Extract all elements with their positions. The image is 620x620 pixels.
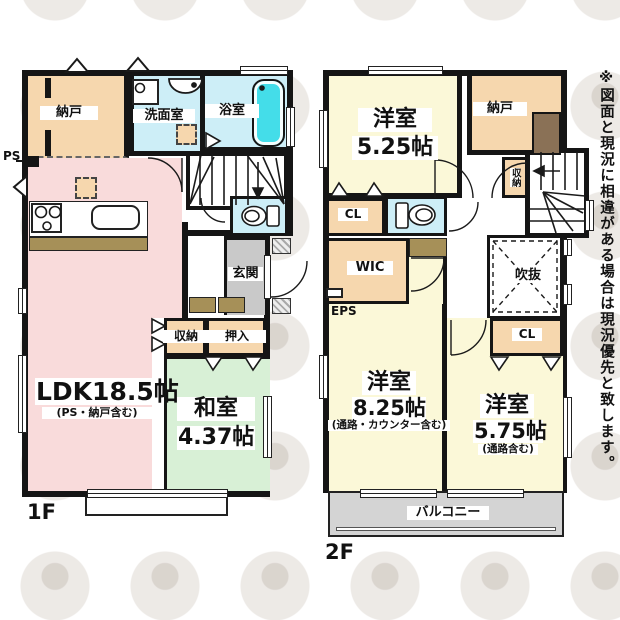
sliding-window — [87, 489, 228, 498]
label-tatami-size: 4.37帖 — [177, 426, 255, 450]
entrance-porch-pillar — [272, 238, 291, 254]
shoe-cabinet — [189, 297, 216, 313]
label-shuno-1f: 収納 — [163, 330, 209, 343]
terrace-step — [85, 497, 228, 516]
window — [319, 355, 328, 399]
label-ldk: LDK18.5帖 — [35, 378, 159, 405]
label-wic: WIC — [347, 261, 393, 275]
label-bedroom-575-size: 5.75帖 — [473, 420, 543, 443]
label-bedroom-575-note: (通路含む) — [478, 444, 538, 455]
label-bedroom-525: 洋室 — [358, 108, 432, 132]
label-balcony: バルコニー — [407, 506, 489, 520]
label-bedroom-825-size: 8.25帖 — [352, 397, 426, 420]
storage-2f-closet — [532, 112, 561, 155]
floorplan-canvas: 納戸 洗面室 浴室 PS LDK18.5帖 (PS・納戸含む) 収納 押入 和室… — [0, 0, 620, 620]
room-tatami — [164, 356, 270, 491]
room-toilet-2f — [385, 196, 447, 236]
hall-wall — [182, 222, 188, 318]
window — [319, 110, 328, 168]
label-entrance: 玄関 — [228, 267, 263, 281]
label-bathroom: 浴室 — [205, 104, 259, 118]
label-cl-b: CL — [512, 328, 542, 341]
window — [563, 284, 572, 305]
label-cl-a: CL — [338, 208, 368, 221]
window — [18, 288, 27, 314]
sink-icon — [91, 205, 140, 230]
window — [368, 66, 443, 75]
label-oshiire: 押入 — [208, 330, 266, 343]
pipe-space-box — [26, 156, 39, 167]
label-washroom: 洗面室 — [133, 109, 195, 123]
window — [286, 107, 295, 147]
washing-machine-icon — [132, 79, 159, 105]
label-void: 吹抜 — [508, 269, 548, 283]
sliding-window — [447, 489, 524, 498]
label-eps: EPS — [330, 305, 358, 318]
label-shuno-2f: 収納 — [510, 168, 520, 187]
label-floor1: 1F — [26, 501, 57, 524]
label-tatami: 和室 — [177, 397, 255, 421]
disclaimer-vertical-text: ※図面と現況に相違がある場合は現況優先と致します。 — [596, 70, 617, 590]
label-bedroom-575: 洋室 — [480, 394, 534, 418]
sliding-window — [360, 489, 437, 498]
stove-icon — [31, 203, 62, 233]
label-floor2: 2F — [324, 541, 355, 564]
window — [18, 355, 27, 433]
balcony-rail-line — [336, 527, 556, 531]
ldk-dashed-column — [75, 177, 97, 199]
label-storage-2f: 納戸 — [473, 102, 527, 116]
window — [263, 396, 272, 458]
entrance-door-leaf — [264, 255, 271, 299]
eps-box — [326, 288, 343, 298]
window — [585, 200, 594, 231]
storage-partition-wall — [45, 130, 51, 156]
window — [563, 397, 572, 458]
kitchen-counter-front — [29, 237, 148, 251]
label-bedroom-825: 洋室 — [362, 371, 416, 395]
label-bedroom-525-size: 5.25帖 — [352, 136, 438, 160]
room-toilet-1f — [230, 196, 288, 236]
label-storage-1f: 納戸 — [40, 106, 98, 120]
stairs-2f — [525, 148, 589, 238]
window — [563, 239, 572, 256]
wic-shelf — [409, 238, 447, 257]
washroom-dashed-column — [176, 124, 197, 145]
label-ldk-note: (PS・納戸含む) — [42, 407, 152, 419]
closet-shuno-2f: 収納 — [502, 157, 528, 198]
label-pipe-space: PS — [2, 150, 21, 163]
storage-partition-wall — [45, 78, 51, 98]
entrance-porch-pillar — [272, 298, 291, 314]
window — [240, 66, 288, 75]
shoe-cabinet — [218, 297, 245, 313]
label-bedroom-825-note: (通路・カウンター含む) — [328, 420, 450, 431]
